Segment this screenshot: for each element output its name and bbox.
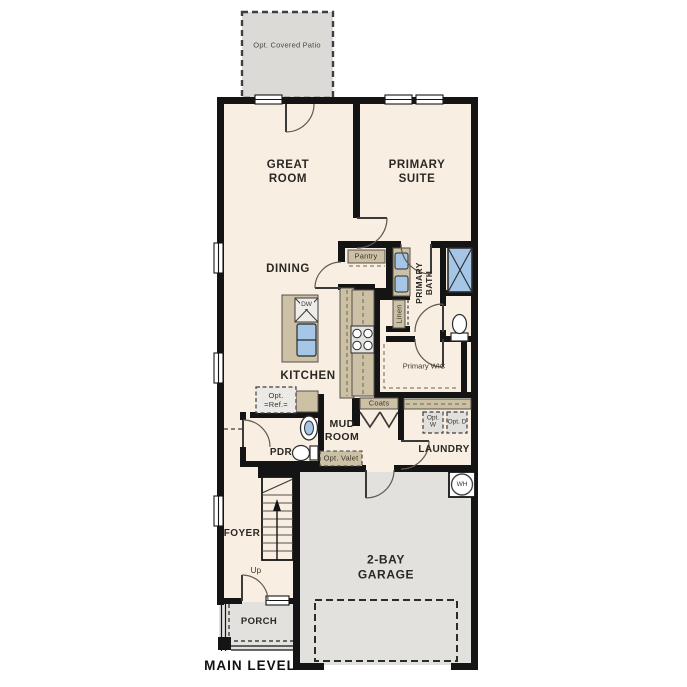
patio-floor [242, 12, 333, 98]
water-heater-label: WH [457, 481, 468, 489]
main-level-title: MAIN LEVEL [204, 658, 296, 674]
pdr-label: PDR [270, 447, 292, 459]
linen-label: Linen [394, 304, 403, 323]
window [214, 496, 223, 526]
primary-wic-label: Primary WIC [401, 361, 447, 370]
laundry-label: LAUNDRY [418, 444, 469, 456]
dining-label: DINING [266, 262, 310, 276]
kitchen-label: KITCHEN [280, 369, 335, 383]
toilet-primary [451, 315, 468, 342]
primary-suite-label: PRIMARY SUITE [385, 158, 449, 186]
window [255, 95, 282, 104]
vanity [393, 248, 410, 296]
up-label: Up [251, 566, 262, 576]
pantry-label: Pantry [355, 251, 378, 260]
cabinet [296, 391, 318, 412]
patio-label: Opt. Covered Patio [253, 40, 320, 49]
porch-post [218, 637, 231, 650]
floor-plan-drawing [0, 0, 687, 687]
mud-room-label: MUD ROOM [316, 418, 368, 444]
floor-plan: Opt. Covered Patio GREAT ROOM PRIMARY SU… [0, 0, 687, 687]
island-sink [297, 324, 316, 356]
window [385, 95, 412, 104]
opt-dryer-label: Opt. D [447, 418, 467, 425]
foyer-label: FOYER [224, 528, 260, 540]
garage-label: 2-BAY GARAGE [343, 552, 429, 581]
great-room-label: GREAT ROOM [256, 158, 320, 186]
coats-label: Coats [369, 398, 390, 407]
dishwasher-label: DW [301, 301, 312, 309]
window [214, 243, 223, 273]
window [214, 353, 223, 383]
primary-bath-label: PRIMARY BATH [415, 256, 435, 310]
window [416, 95, 443, 104]
opt-washer-label: Opt. W [423, 415, 443, 430]
porch-label: PORCH [241, 616, 277, 628]
stairs [262, 477, 293, 560]
opt-ref-label: Opt. =Ref.= [260, 391, 292, 409]
range [351, 326, 374, 353]
window [266, 596, 289, 605]
pdr-toilet [293, 446, 319, 461]
shower [448, 248, 472, 292]
opt-valet-label: Opt. Valet [324, 453, 359, 462]
pdr-sink [301, 416, 318, 440]
